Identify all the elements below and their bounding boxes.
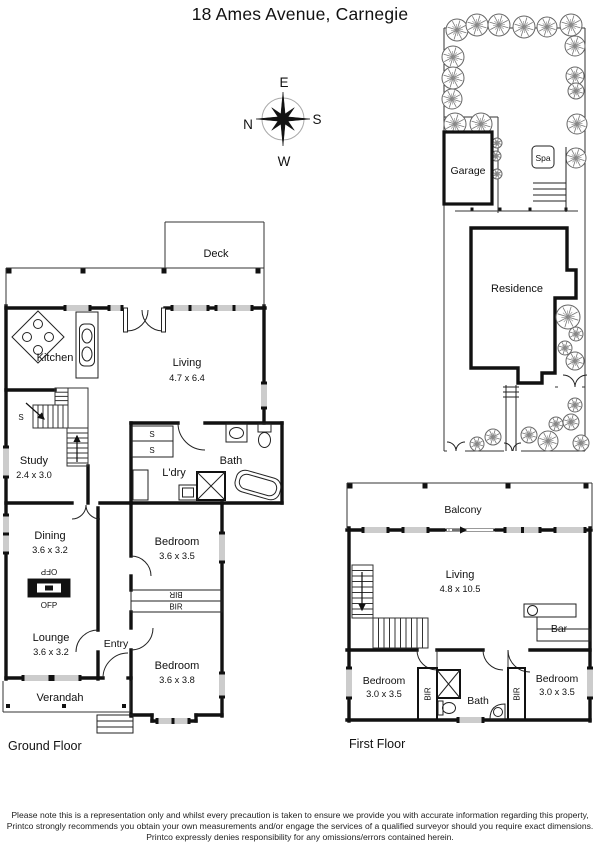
- room-label-lounge: Lounge: [33, 632, 70, 644]
- fireplace-icon: [28, 579, 70, 597]
- room-label-bedroom-left-first: Bedroom: [363, 675, 406, 687]
- room-label-balcony: Balcony: [444, 504, 482, 516]
- disclaimer-line-1: Please note this is a representation onl…: [11, 810, 588, 820]
- kitchen-sink-icon: [76, 312, 98, 378]
- room-label-bar: Bar: [551, 623, 568, 635]
- site-label-spa: Spa: [535, 153, 550, 163]
- page-title: 18 Ames Avenue, Carnegie: [192, 4, 409, 24]
- site-label-garage: Garage: [450, 165, 485, 177]
- room-label-kitchen: Kitchen: [37, 352, 74, 364]
- dims-bedroom2-ground: 3.6 x 3.8: [159, 675, 195, 685]
- room-label-bedroom2-ground: Bedroom: [155, 660, 200, 672]
- cupboard-marker-2: S: [149, 446, 154, 455]
- dims-living-ground: 4.7 x 6.4: [169, 373, 205, 383]
- fireplace-marker-bottom: OFP: [41, 601, 57, 610]
- disclaimer-line-3: Printco expressly denies responsibility …: [146, 832, 454, 842]
- dims-bedroom-right-first: 3.0 x 3.5: [539, 687, 575, 697]
- room-label-study: Study: [20, 455, 49, 467]
- stair-marker-ground: S: [18, 413, 23, 422]
- robe-columns-first: [418, 668, 525, 720]
- floor-label-ground: Ground Floor: [8, 739, 82, 753]
- compass-west: W: [278, 154, 291, 169]
- site-label-residence: Residence: [491, 283, 543, 295]
- room-label-entry: Entry: [104, 638, 129, 650]
- dims-study: 2.4 x 3.0: [16, 470, 52, 480]
- laundry-cupboards: [132, 426, 197, 500]
- room-label-dining: Dining: [34, 530, 65, 542]
- compass-rose-icon: [256, 92, 310, 146]
- slider-arrow-icon: [445, 529, 495, 532]
- dims-living-first: 4.8 x 10.5: [440, 584, 481, 594]
- plan-fixtures: [12, 92, 590, 733]
- room-label-bedroom-right-first: Bedroom: [536, 673, 579, 685]
- room-label-verandah: Verandah: [36, 692, 83, 704]
- robe-marker-first-left: BIR: [424, 687, 433, 701]
- plan-geometry: [3, 14, 593, 724]
- room-label-living-ground: Living: [173, 357, 202, 369]
- compass-south: S: [312, 112, 321, 127]
- cupboard-marker-1: S: [149, 430, 154, 439]
- dims-bedroom-left-first: 3.0 x 3.5: [366, 689, 402, 699]
- floor-label-first: First Floor: [349, 737, 405, 751]
- robe-marker-ground-top: BIR: [169, 590, 183, 599]
- room-label-laundry: L'dry: [162, 467, 186, 479]
- dims-bedroom1-ground: 3.6 x 3.5: [159, 551, 195, 561]
- dims-dining: 3.6 x 3.2: [32, 545, 68, 555]
- fireplace-marker-top: OFP: [41, 567, 57, 576]
- compass-north: N: [243, 117, 253, 132]
- front-path: [503, 385, 519, 451]
- dims-lounge: 3.6 x 3.2: [33, 647, 69, 657]
- room-label-bath-first: Bath: [467, 695, 489, 707]
- room-label-bedroom1-ground: Bedroom: [155, 536, 200, 548]
- compass-east: E: [279, 75, 288, 90]
- room-label-living-first: Living: [446, 569, 475, 581]
- room-label-bath-ground: Bath: [220, 455, 243, 467]
- robe-marker-first-right: BIR: [513, 687, 522, 701]
- robe-marker-ground-bottom: BIR: [169, 603, 183, 612]
- verandah-steps: [97, 715, 133, 733]
- disclaimer-line-2: Printco strongly recommends you obtain y…: [7, 821, 594, 831]
- floorplan-page: 18 Ames Avenue, Carnegie E S W N Deck Ki…: [0, 0, 600, 846]
- floorplan-canvas: 18 Ames Avenue, Carnegie E S W N Deck Ki…: [0, 0, 600, 846]
- room-label-deck: Deck: [203, 248, 229, 260]
